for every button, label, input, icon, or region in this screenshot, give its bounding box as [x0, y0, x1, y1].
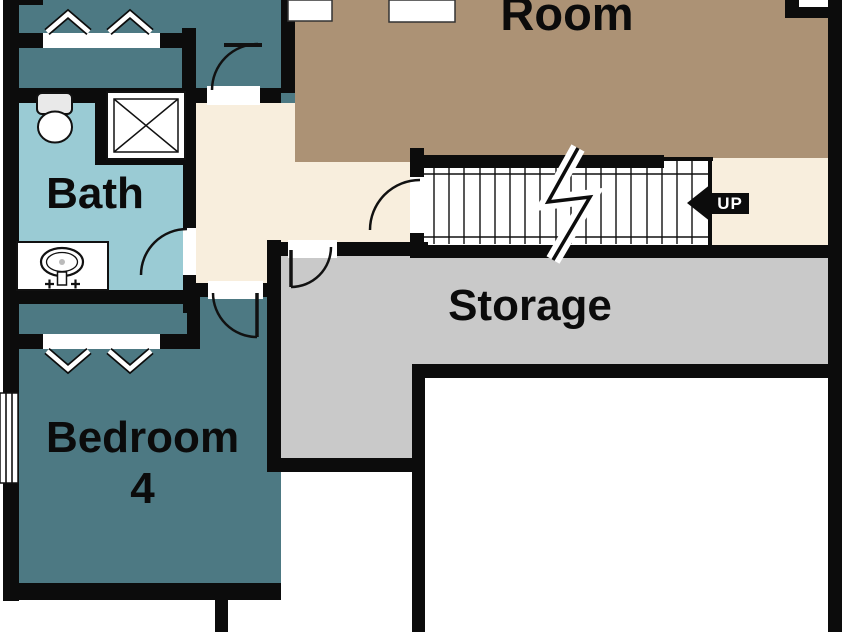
sink-vanity-icon [17, 242, 108, 290]
unfinished-room-floor [425, 378, 828, 632]
shower-icon [107, 92, 185, 159]
storage-label: Storage [420, 281, 640, 331]
bedroom4-label-line2: 4 [20, 463, 265, 514]
stairs-up-label: UP [711, 193, 749, 214]
great-room-label: Room [447, 0, 687, 41]
bedroom4-label: Bedroom 4 [20, 412, 265, 514]
floor-plan: Room Bath Storage Bedroom 4 UP [0, 0, 843, 632]
window-icon [0, 393, 18, 483]
bath-label: Bath [15, 169, 175, 219]
toilet-icon [37, 93, 72, 143]
bedroom4-label-line1: Bedroom [20, 412, 265, 463]
